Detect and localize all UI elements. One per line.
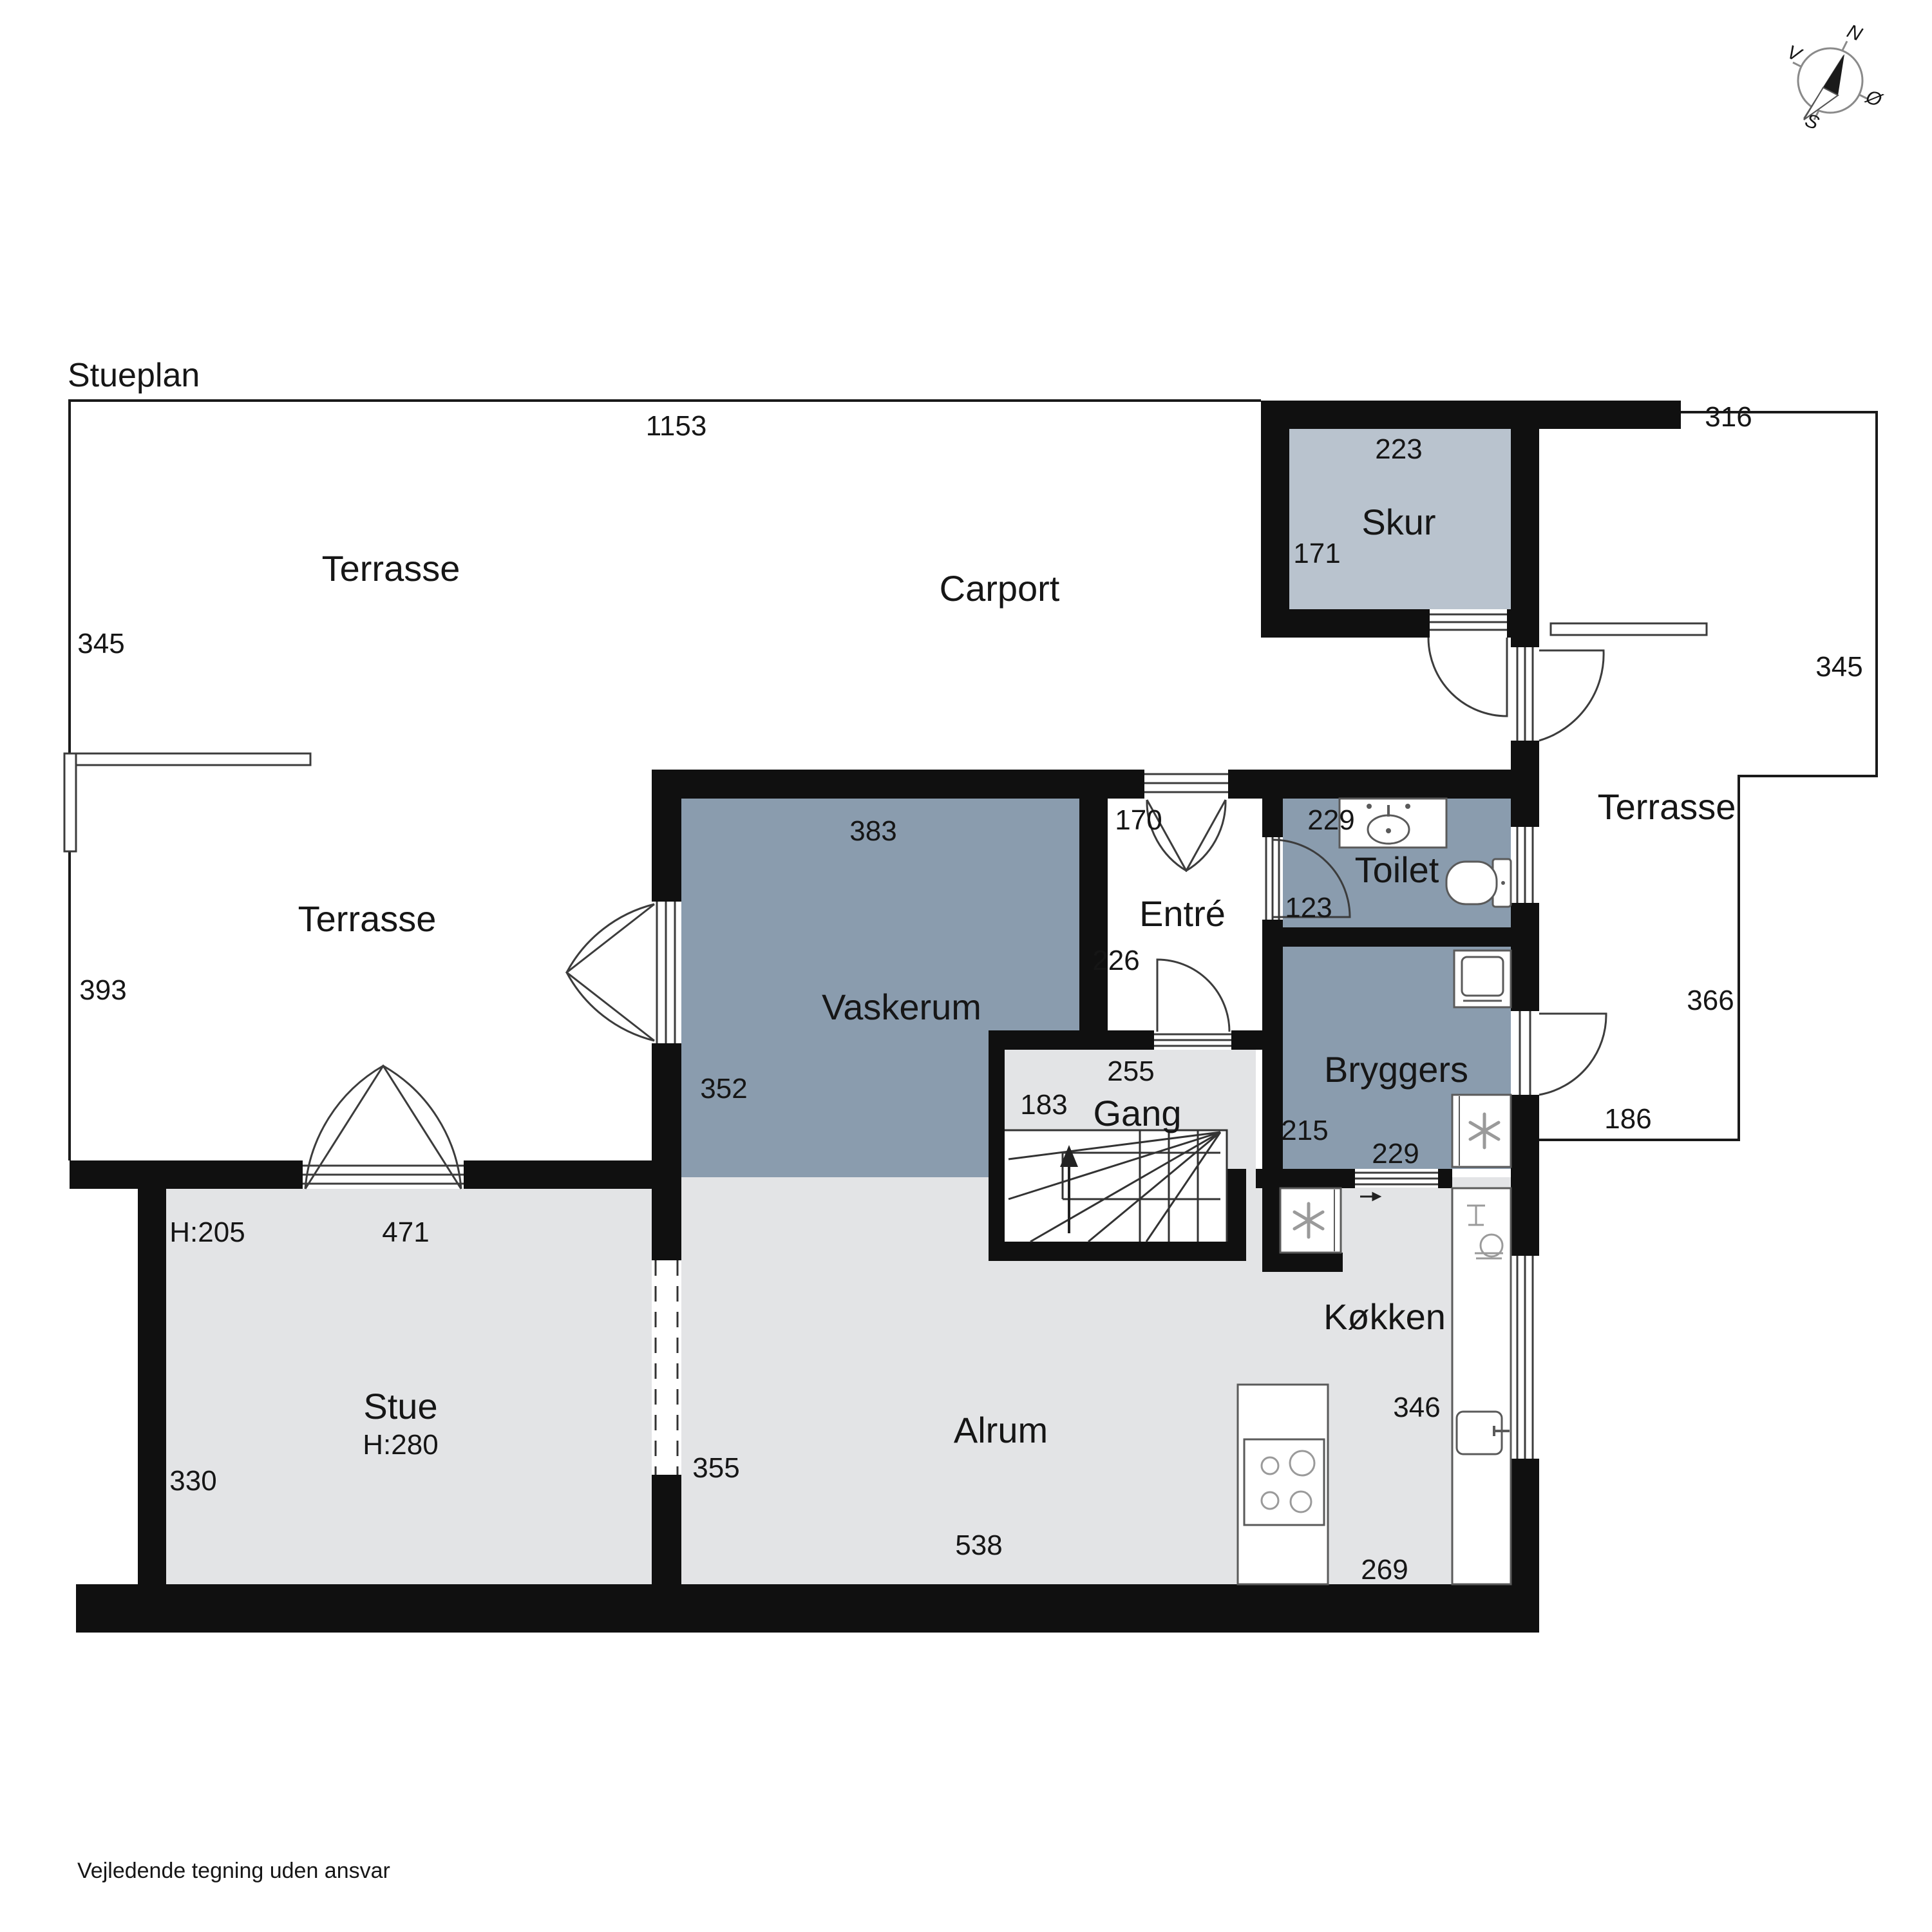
stue-ceiling: H:280 [363,1429,438,1461]
sink-counter [1340,799,1446,848]
door-swing [1428,638,1507,716]
carport-label: Carport [940,568,1060,609]
dim-top: 1153 [646,410,707,442]
dim-366: 366 [1687,985,1734,1016]
wall-spine-upper [1262,799,1283,837]
wall-gang-south [989,1242,1246,1261]
wall-skur-north [1261,401,1681,429]
stue-dim-h: 330 [169,1465,216,1497]
wall-entre-west [1079,770,1108,1030]
skur-label: Skur [1361,502,1435,542]
wall-north-left [652,770,1144,799]
skur-dim-w: 223 [1375,433,1422,465]
wall-north-right [1228,770,1539,799]
stue-dim-open: 355 [692,1452,739,1484]
wall-skur-south-left [1261,609,1430,638]
wall-skur-west [1261,401,1289,638]
bryggers-label: Bryggers [1324,1049,1468,1090]
wall-spine-lower [1262,920,1283,1188]
sink-handle-left [1367,804,1372,809]
gang-dim-stair: 183 [1020,1089,1067,1121]
entre-dim-h: 226 [1092,945,1139,976]
wall-east-3 [1511,903,1539,1011]
kitchen-island [1238,1385,1328,1584]
terrace-railing-west-horizontal [70,753,310,765]
wall-gang-top-right [1231,1030,1262,1050]
vaskerum-label: Vaskerum [822,987,981,1027]
dim-345-left: 345 [77,628,124,659]
door-swing [1539,650,1604,741]
stue-terrace-door [303,1066,464,1189]
vaskerum-dim-w: 383 [849,815,896,847]
terrace-railing-east [1551,623,1707,635]
kokken-dim-w: 269 [1361,1554,1408,1586]
toilet-dim-h: 123 [1285,892,1332,923]
toilet-fixture-icon [1446,859,1511,907]
sink-drain [1386,828,1391,833]
toilet-dim-w: 229 [1307,804,1354,836]
skur-dim-h: 171 [1293,538,1340,569]
wall-skur-south-right [1507,609,1539,638]
terrasse-nw-label: Terrasse [322,548,460,589]
wall-vaskerum-west-upper [652,770,681,902]
kokken-label: Køkken [1323,1296,1446,1337]
floorplan-canvas: Stueplan Vejledende tegning uden ansvar [0,0,1932,1932]
door-swing [1539,1014,1606,1095]
alrum-dim-w: 538 [955,1529,1002,1561]
wall-toilet-south [1262,927,1539,947]
bryggers-dim-h: 215 [1281,1115,1328,1146]
wall-south [76,1584,1539,1633]
wall-kitchen-enclosure-horz [1262,1253,1343,1272]
wall-divider-upper [652,1189,681,1260]
stue-dim-w: 471 [382,1217,429,1248]
bathroom-sink-icon [1340,799,1446,848]
compass-east-label: Ø [1862,86,1886,111]
skur-door [1428,610,1507,716]
stue-label: Stue [363,1386,437,1426]
dim-345-right: 345 [1815,651,1862,683]
washing-machine-icon [1454,951,1511,1007]
wall-stair-stub [1227,1169,1246,1242]
toilet-bowl [1446,862,1497,904]
kokken-dim-h: 346 [1393,1392,1440,1423]
wall-east-4 [1511,1095,1539,1256]
wall-east-5 [1511,1459,1539,1633]
dim-316: 316 [1705,401,1752,433]
toilet-window [1511,827,1539,903]
fridge-icon [1280,1188,1341,1253]
wall-bryggers-south-right [1438,1169,1452,1188]
door-gap [1511,1011,1539,1095]
vaskerum-dim-h: 352 [700,1073,747,1104]
compass-south-label: S [1802,109,1822,134]
wall-stue-top-right [464,1160,681,1189]
terrace-railing-west-vertical [64,753,76,851]
kitchen-window [1511,1256,1539,1459]
toilet-label: Toilet [1355,849,1439,890]
freezer-icon [1452,1095,1511,1167]
dim-186: 186 [1604,1103,1651,1135]
dim-393: 393 [79,974,126,1006]
alrum-label: Alrum [954,1410,1048,1450]
stue-door-height: H:205 [169,1217,245,1248]
gang-label: Gang [1094,1093,1182,1133]
entre-dim-door: 170 [1115,804,1162,836]
floorplan-page: Stueplan Vejledende tegning uden ansvar [0,0,1932,1932]
vaskerum-terrace-door [567,902,681,1043]
compass-icon: N Ø S V [1784,21,1886,134]
wall-east-2 [1511,741,1539,827]
terrace-gate-door [1511,647,1604,741]
terrace-e-outline [1539,412,1877,1140]
kitchen-counter [1452,1188,1511,1584]
sink-handle-right [1405,804,1410,809]
wall-stue-top-left [70,1160,303,1189]
wall-divider-lower [652,1475,681,1584]
wall-stue-west [138,1189,166,1584]
toilet-flush [1501,881,1505,885]
entre-label: Entré [1139,893,1226,934]
bryggers-terrace-door [1511,1011,1606,1095]
stairs-icon [1005,1130,1227,1242]
wall-gang-west [989,1030,1005,1261]
wall-gang-top-left [989,1030,1154,1050]
stue-alrum-opening [652,1260,681,1475]
page-title: Stueplan [68,357,200,394]
gang-dim-w: 255 [1107,1056,1154,1087]
terrasse-e-label: Terrasse [1598,786,1736,827]
bryggers-dim-w: 229 [1372,1138,1419,1170]
disclaimer-text: Vejledende tegning uden ansvar [77,1859,390,1883]
wall-vaskerum-west-lower [652,1043,681,1160]
terrasse-w-label: Terrasse [298,898,437,939]
wall-bryggers-south-left [1256,1169,1355,1188]
stove-icon [1244,1439,1324,1525]
